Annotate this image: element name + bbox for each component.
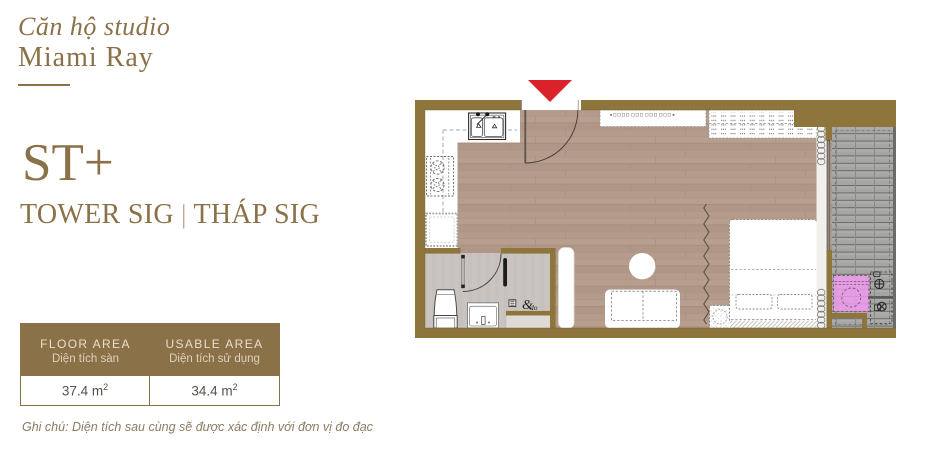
svg-text:do: do [530, 303, 538, 312]
